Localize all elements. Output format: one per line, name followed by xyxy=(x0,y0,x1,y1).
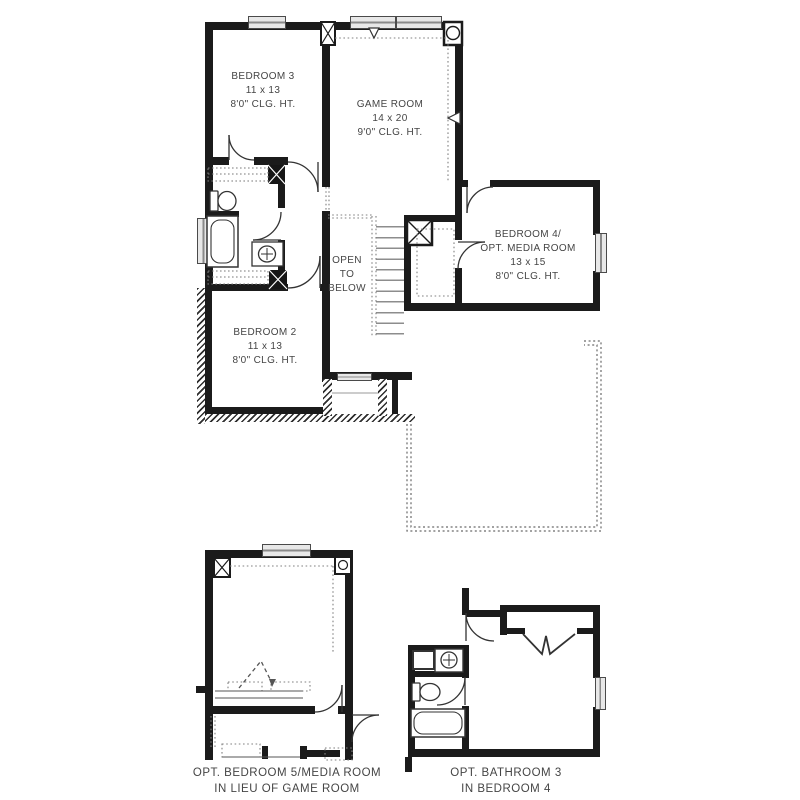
stairwell-label: OPEN TO BELOW xyxy=(328,254,366,296)
window xyxy=(248,16,286,29)
wall xyxy=(404,215,462,222)
wall xyxy=(408,645,415,755)
wall xyxy=(505,605,600,612)
wall xyxy=(196,686,205,693)
wall xyxy=(205,706,315,714)
wall xyxy=(455,187,462,240)
wall xyxy=(404,303,600,311)
wall xyxy=(405,757,412,772)
wall xyxy=(278,160,285,208)
wall xyxy=(305,750,340,757)
wall xyxy=(404,215,411,311)
hatched-wall xyxy=(323,379,332,416)
wall xyxy=(205,407,325,414)
wall xyxy=(593,605,600,678)
room-label-bedroom4: BEDROOM 4/ OPT. MEDIA ROOM 13 x 15 8'0" … xyxy=(480,228,575,284)
room-ceiling: 8'0" CLG. HT. xyxy=(480,270,575,284)
wall xyxy=(455,268,462,303)
hatched-wall xyxy=(378,379,387,416)
wall xyxy=(392,380,398,414)
wall xyxy=(205,550,213,715)
wall xyxy=(490,180,600,187)
wall xyxy=(205,713,213,760)
wall xyxy=(408,645,468,652)
window xyxy=(197,218,210,264)
wall xyxy=(278,240,285,288)
window xyxy=(337,373,372,381)
vanity-counters xyxy=(208,168,268,284)
stairwell-line: BELOW xyxy=(328,282,366,296)
stair-treads xyxy=(376,217,404,336)
room-dims: 11 x 13 xyxy=(230,84,295,98)
wall xyxy=(408,671,466,677)
stairwell-line: OPEN xyxy=(328,254,366,268)
wall xyxy=(593,180,600,235)
wall xyxy=(462,706,469,751)
room-label-bedroom2: BEDROOM 2 11 x 13 8'0" CLG. HT. xyxy=(232,326,297,368)
room-ceiling: 8'0" CLG. HT. xyxy=(230,98,295,112)
wall xyxy=(205,22,213,218)
wall xyxy=(322,211,330,382)
caption-line: OPT. BATHROOM 3 xyxy=(450,766,561,782)
opt-bedroom5-details xyxy=(211,566,352,760)
wall xyxy=(205,157,229,165)
caption-opt-bedroom5: OPT. BEDROOM 5/MEDIA ROOM IN LIEU OF GAM… xyxy=(193,766,381,797)
wall xyxy=(262,746,268,759)
caption-opt-bathroom3: OPT. BATHROOM 3 IN BEDROOM 4 xyxy=(450,766,561,797)
caption-line: IN BEDROOM 4 xyxy=(450,782,561,798)
window xyxy=(350,16,396,29)
window xyxy=(262,544,311,557)
room-ceiling: 9'0" CLG. HT. xyxy=(357,126,424,140)
window xyxy=(595,233,607,273)
stairwell-line: TO xyxy=(328,268,366,282)
room-name: GAME ROOM xyxy=(357,98,424,112)
room-name: BEDROOM 3 xyxy=(230,70,295,84)
room-name: BEDROOM 4/ xyxy=(480,228,575,242)
window xyxy=(595,677,606,710)
wall xyxy=(345,550,353,713)
roof-outline-dashed xyxy=(407,341,601,531)
room-name: BEDROOM 2 xyxy=(232,326,297,340)
wall xyxy=(205,211,239,217)
caption-line: OPT. BEDROOM 5/MEDIA ROOM xyxy=(193,766,381,782)
bifold-closet-doors xyxy=(523,634,575,654)
room-dims: 11 x 13 xyxy=(232,340,297,354)
room-ceiling: 8'0" CLG. HT. xyxy=(232,354,297,368)
bathroom-fixtures xyxy=(207,191,283,267)
caption-line: IN LIEU OF GAME ROOM xyxy=(193,782,381,798)
wall xyxy=(505,628,525,634)
room-label-bedroom3: BEDROOM 3 11 x 13 8'0" CLG. HT. xyxy=(230,70,295,112)
room-alt-name: OPT. MEDIA ROOM xyxy=(480,242,575,256)
floor-plan-sheet: BEDROOM 3 11 x 13 8'0" CLG. HT. GAME ROO… xyxy=(0,0,800,800)
room-label-gameroom: GAME ROOM 14 x 20 9'0" CLG. HT. xyxy=(357,98,424,140)
wall xyxy=(408,749,600,757)
wall xyxy=(345,713,353,760)
window xyxy=(396,16,442,29)
room-dims: 14 x 20 xyxy=(357,112,424,126)
wall xyxy=(205,284,288,291)
wall xyxy=(205,288,212,409)
room-dims: 13 x 15 xyxy=(480,256,575,270)
wall xyxy=(455,22,463,187)
wall xyxy=(322,29,330,187)
wall xyxy=(455,180,468,187)
hatched-wall xyxy=(197,288,205,424)
